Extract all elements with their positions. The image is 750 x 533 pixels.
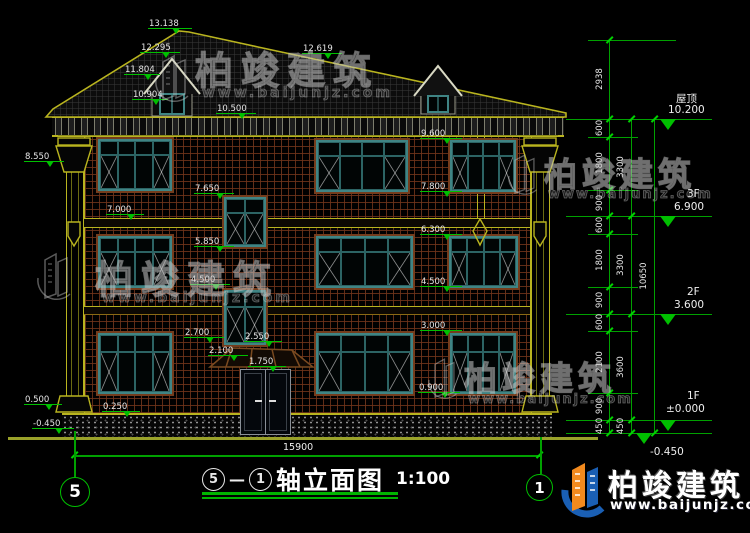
level-value: 4.500 [421,277,445,287]
title-dash: — [229,470,245,489]
level-triangle-icon [660,314,676,325]
level-triangle-icon [45,404,53,410]
axis-bubble-1: 1 [526,474,553,501]
watermark-logo-icon [422,354,460,404]
level-triangle-icon [230,355,238,361]
level-triangle-icon [46,161,54,167]
dim-segment: 450 [595,406,607,446]
level-triangle-icon [55,428,63,434]
level-triangle-icon [660,216,676,227]
level-value: 9.600 [421,129,445,139]
dim-segment: 3300 [616,245,628,285]
elevation-drawing-canvas: 2938 600 1800 900 600 1800 900 600 2100 … [0,0,750,533]
level-value: -0.450 [650,446,684,458]
level-triangle-icon [206,337,214,343]
level-name: 2F [687,286,700,298]
baijun-logo-icon [556,456,606,520]
level-triangle-icon [443,138,451,144]
level-triangle-icon [216,193,224,199]
level-name: 1F [687,390,700,402]
axis-bubble-5: 5 [60,477,90,507]
watermark-url: www.baijunjz.com [102,290,293,306]
level-triangle-icon [265,341,273,347]
level-triangle-icon [636,433,652,444]
level-value: ±0.000 [666,403,705,415]
level-triangle-icon [123,411,131,417]
level-triangle-icon [660,420,676,431]
level-value: 7.800 [421,182,445,192]
bottom-dim-line [74,455,540,457]
dim-segment: 1800 [595,240,607,280]
title-scale: 1:100 [396,469,450,489]
level-value: 10.200 [668,104,705,116]
level-triangle-icon [238,113,246,119]
dim-segment: 3600 [616,347,628,387]
level-triangle-icon [172,28,180,34]
watermark-url: www.baijunjz.com [202,85,393,101]
watermark-url: www.baijunjz.com [548,187,713,202]
footer-brand-url: www.baijunjz.com [610,497,750,513]
dormer-right [414,66,462,114]
level-triangle-icon [443,286,451,292]
dim-segment: 600 [595,108,607,148]
watermark-logo-icon [30,248,74,306]
level-triangle-icon [269,366,277,372]
level-triangle-icon [127,214,135,220]
title-axis-start: 5 [202,468,225,491]
watermark-url: www.baijunjz.com [468,392,633,407]
level-triangle-icon [660,119,676,130]
title-underline-thin [202,497,398,499]
title-axis-end: 1 [249,468,272,491]
title-underline-thick [202,492,398,495]
level-value: 6.300 [421,225,445,235]
level-triangle-icon [443,191,451,197]
overall-width-dim: 15900 [283,442,313,453]
level-value: 3.600 [674,299,704,311]
downspout-pendant [473,219,487,245]
level-triangle-icon [443,234,451,240]
dim-segment: 2938 [595,59,607,99]
level-triangle-icon [443,330,451,336]
watermark-logo-icon [502,150,540,200]
level-value: 6.900 [674,201,704,213]
watermark-logo-icon [148,50,192,108]
level-value: 3.000 [421,321,445,331]
dim-segment: 450 [616,406,628,446]
dim-segment: 10650 [639,256,651,296]
dim-segment: 600 [595,302,607,342]
dim-segment: 600 [595,205,607,245]
